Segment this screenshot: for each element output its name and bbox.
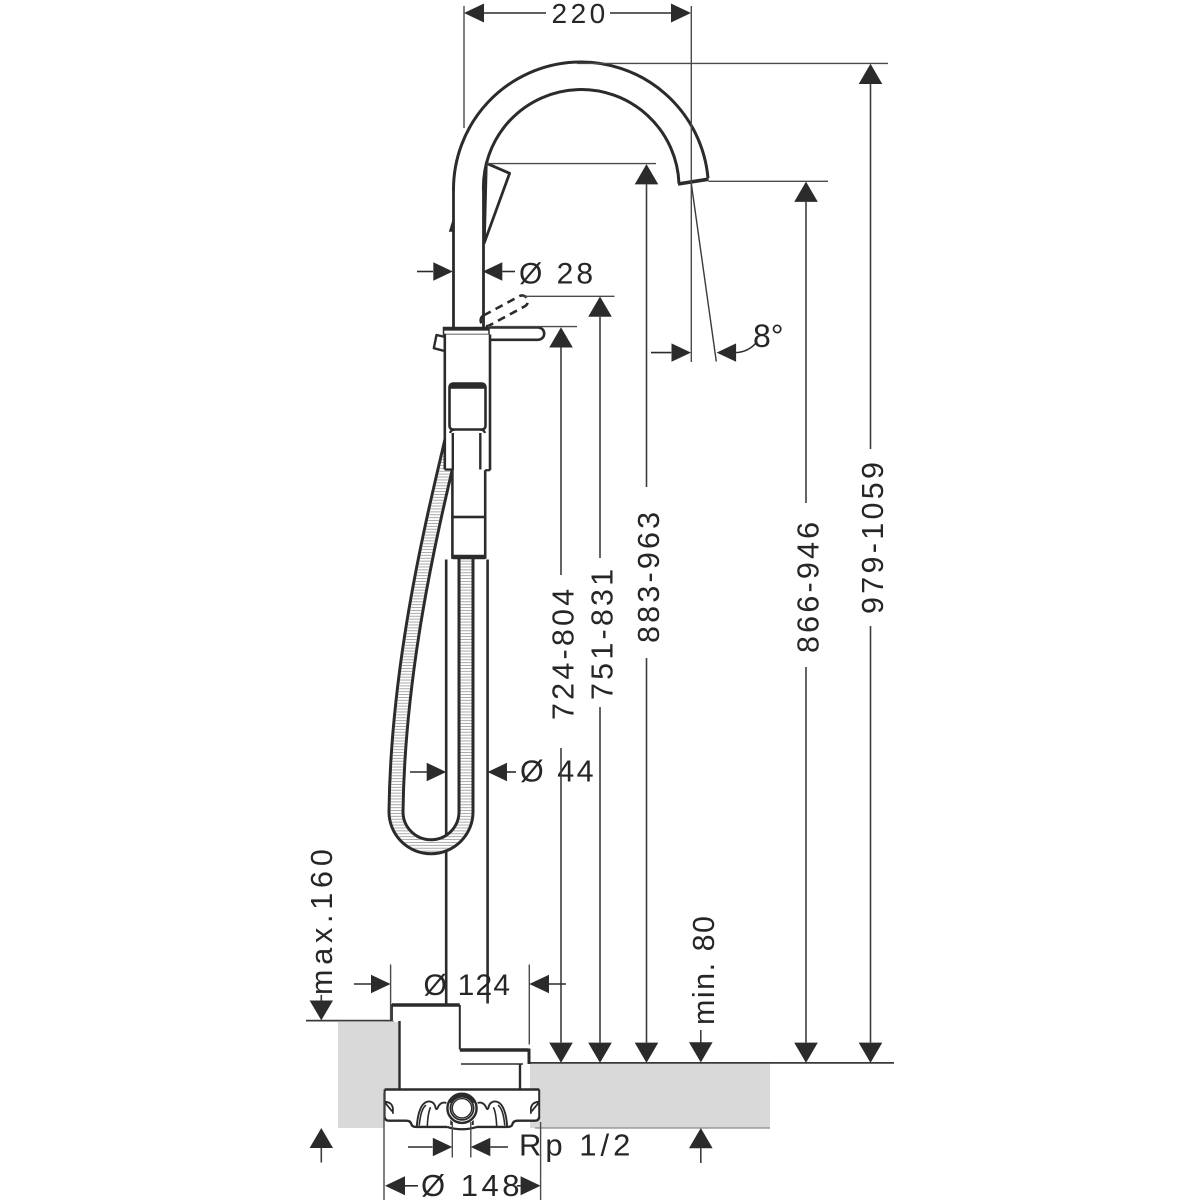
svg-text:Ø 124: Ø 124 (424, 969, 512, 1002)
svg-text:Rp 1/2: Rp 1/2 (519, 1128, 634, 1163)
svg-text:max.160: max.160 (305, 844, 339, 995)
svg-text:751-831: 751-831 (586, 566, 620, 700)
svg-text:979-1059: 979-1059 (856, 459, 890, 614)
svg-text:min. 80: min. 80 (687, 914, 721, 1025)
svg-text:883-963: 883-963 (632, 509, 666, 643)
svg-text:866-946: 866-946 (792, 519, 826, 653)
svg-text:Ø 148: Ø 148 (421, 1168, 523, 1200)
svg-text:Ø 44: Ø 44 (520, 755, 596, 789)
svg-text:724-804: 724-804 (547, 586, 581, 720)
svg-text:220: 220 (552, 0, 609, 29)
svg-text:8°: 8° (753, 318, 784, 354)
svg-text:Ø 28: Ø 28 (519, 258, 596, 291)
